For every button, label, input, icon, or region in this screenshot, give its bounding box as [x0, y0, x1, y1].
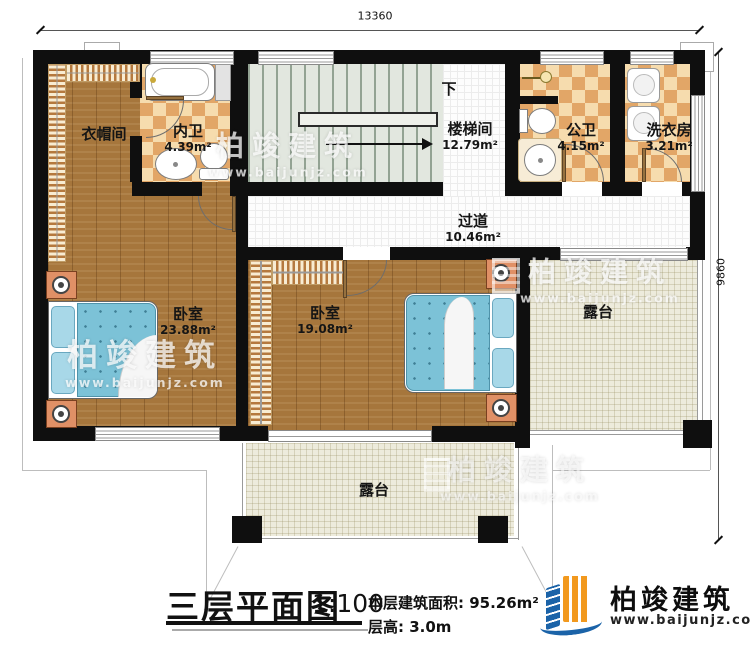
room-label-inner-bath: 内卫 4.39m²: [164, 122, 211, 154]
wall-left: [33, 50, 48, 440]
wall-bedroom-mid-top-a: [236, 247, 343, 260]
window-top-stairs: [258, 51, 334, 65]
shower-head: [540, 71, 552, 83]
dim-tick: [714, 535, 723, 544]
room-name: 露台: [583, 303, 613, 321]
room-label-bedroom-mid: 卧室 19.08m²: [297, 304, 353, 336]
terrace-bottom-right-edge: [518, 443, 519, 540]
terrace-right-bottom-edge: [530, 430, 697, 431]
lamp: [52, 405, 70, 423]
stair-railing: [298, 112, 438, 127]
floor-plan-canvas: 13360 9860: [0, 0, 750, 645]
bed-mid-pillow: [492, 298, 514, 338]
terrace-right-bottom-edge2: [530, 434, 697, 435]
wall-innerbath-bottom: [132, 182, 202, 196]
door-leaf-bedroom-left: [232, 196, 236, 232]
room-label-cloakroom: 衣帽间: [81, 125, 126, 143]
wall-innerbath-right: [230, 64, 248, 196]
bed-left-pillow: [51, 306, 75, 348]
toilet-inner-bath-base: [199, 168, 229, 180]
stair-down-label: 下: [441, 80, 456, 98]
sliding-door-terrace-bottom: [268, 430, 432, 442]
washer-1-door: [633, 74, 655, 96]
bed-mid-sheet-fold: [444, 297, 474, 389]
dim-top-label: 13360: [358, 10, 393, 23]
dim-right-line: [718, 52, 719, 540]
room-name: 过道: [445, 212, 501, 230]
bed-mid-pillow: [492, 348, 514, 388]
brand-logo-mark: [540, 570, 606, 640]
room-name: 露台: [359, 481, 389, 499]
outline-bottom-right: [552, 470, 710, 471]
watermark-logo-mark: [424, 458, 450, 492]
toilet-public-tank: [519, 109, 528, 133]
wall-under-stairs: [236, 182, 443, 196]
wall-hallway-terrace-pillar: [686, 247, 705, 260]
title-underline: [166, 621, 362, 625]
brand-website: www.baijunjz.com: [610, 613, 750, 628]
privacy-wall-stub: [518, 96, 558, 104]
wall-publicbath-bottom-b: [602, 182, 642, 196]
room-name: 卧室: [160, 305, 216, 323]
title-underline-thin: [172, 629, 368, 631]
wall-top: [33, 50, 705, 64]
room-area: 10.46m²: [445, 230, 501, 244]
room-name: 公卫: [557, 121, 604, 139]
floor-height-label: 层高:: [368, 618, 404, 636]
shower-head-line: [522, 77, 542, 79]
wall-innerbath-left-lower: [130, 136, 142, 182]
stair-down-text: 下: [441, 80, 456, 98]
dim-right-label: 9860: [715, 258, 728, 286]
brand-name: 柏竣建筑: [610, 578, 734, 617]
outline-bottom-left: [22, 470, 206, 471]
lamp: [52, 276, 70, 294]
window-bedroom-left-bottom: [95, 427, 220, 441]
dim-tick: [695, 25, 704, 34]
lamp: [492, 399, 510, 417]
room-area: 12.79m²: [442, 138, 498, 152]
floor-area-label: 本层建筑面积:: [368, 594, 464, 612]
room-label-public-bath: 公卫 4.15m²: [557, 121, 604, 153]
stair-arrowhead: [422, 138, 433, 150]
shower-panel: [215, 64, 231, 101]
bathtub-inner: [151, 68, 209, 96]
floor-area-value: 95.26m²: [469, 594, 539, 612]
dim-top-line: [40, 30, 700, 31]
room-area: 4.15m²: [557, 139, 604, 153]
terrace-right-edge: [697, 260, 698, 433]
wall-publicbath-laundry: [610, 64, 625, 182]
window-top-publicbath: [540, 51, 604, 65]
room-name: 内卫: [164, 122, 211, 140]
floor-terrace-right: [530, 260, 697, 430]
window-right-wall: [691, 95, 705, 192]
room-label-terrace-right: 露台: [583, 303, 613, 321]
stair-direction-arrow: [326, 143, 422, 145]
bed-left-pillow: [51, 352, 75, 394]
sink-public-drain: [538, 158, 543, 163]
wall-bedroom-mid-top-b: [390, 247, 560, 260]
room-label-terrace-bottom: 露台: [359, 481, 389, 499]
toilet-public-bowl: [528, 108, 556, 134]
closet-cloakroom-top: [66, 64, 140, 82]
bathtub-faucet: [150, 77, 156, 83]
watermark-logo-mark: [492, 258, 520, 294]
room-area: 3.21m²: [645, 139, 692, 153]
pillar-terrace-right-corner: [683, 420, 712, 448]
room-label-stairwell: 楼梯间 12.79m²: [442, 120, 498, 152]
lamp-dot: [58, 411, 64, 417]
room-name: 卧室: [297, 304, 353, 322]
room-area: 4.39m²: [164, 140, 211, 154]
lamp-dot: [58, 282, 64, 288]
window-hallway-terrace: [560, 248, 688, 261]
terrace-right-edge2: [702, 260, 703, 433]
closet-cloakroom-left: [48, 64, 66, 262]
lamp-dot: [498, 405, 504, 411]
closet-bedroom-mid-top: [272, 260, 344, 285]
outline-right: [710, 50, 711, 470]
floor-area-info: 本层建筑面积: 95.26m²: [368, 592, 539, 613]
floor-height-info: 层高: 3.0m: [368, 616, 451, 637]
room-name: 楼梯间: [442, 120, 498, 138]
room-label-laundry: 洗衣房 3.21m²: [645, 121, 692, 153]
room-area: 19.08m²: [297, 322, 353, 336]
room-name: 洗衣房: [645, 121, 692, 139]
pillar-terrace-bottom-right: [478, 516, 508, 543]
room-label-hallway: 过道 10.46m²: [445, 212, 501, 244]
closet-bedroom-mid-left: [250, 260, 272, 425]
outline-left: [22, 58, 23, 470]
wall-publicbath-bottom-a: [505, 182, 562, 196]
window-top-laundry: [630, 51, 674, 65]
sink-inner-bath-drain: [173, 162, 178, 167]
pillar-terrace-bottom-left: [232, 516, 262, 543]
room-area: 23.88m²: [160, 323, 216, 337]
floor-height-value: 3.0m: [409, 618, 451, 636]
wall-bedrooms-divider: [236, 182, 248, 440]
room-label-bedroom-left: 卧室 23.88m²: [160, 305, 216, 337]
room-name: 衣帽间: [81, 125, 126, 143]
